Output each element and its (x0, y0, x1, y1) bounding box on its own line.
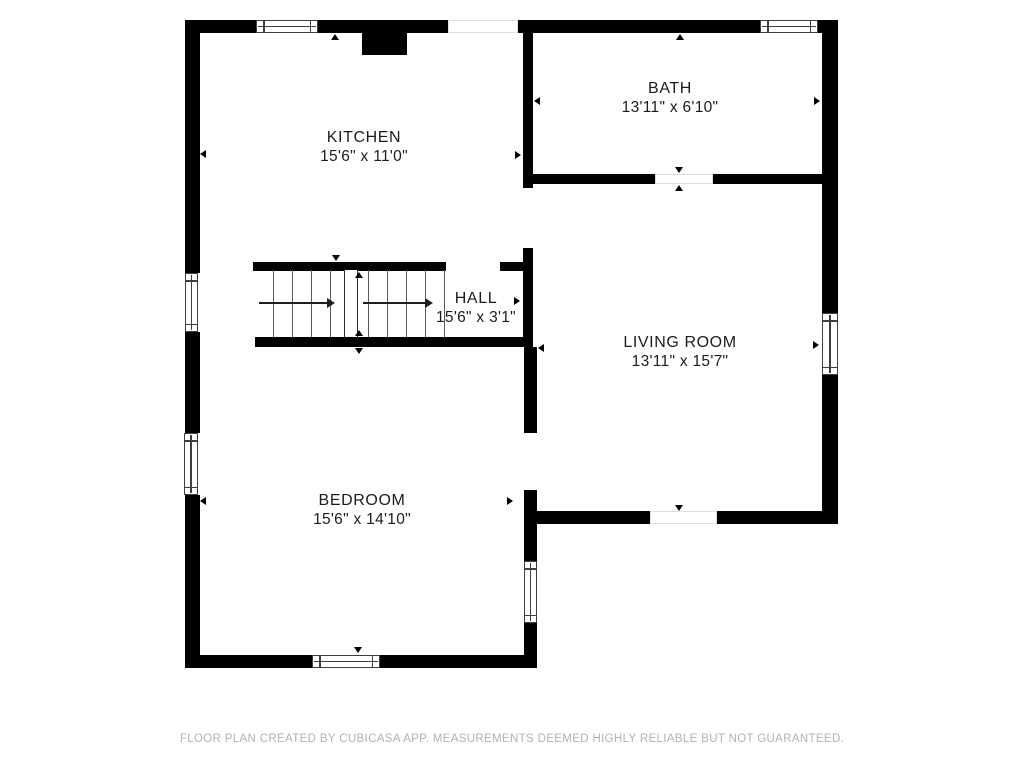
door-opening-living-room-bottom (650, 511, 717, 524)
staircase-direction-arrow (259, 302, 327, 304)
wall-left (185, 20, 200, 273)
room-dimensions: 13'11" x 15'7" (623, 352, 736, 371)
opening-marker-icon (355, 348, 363, 354)
opening-marker-icon (814, 97, 820, 105)
wall-left (185, 495, 200, 668)
room-name: BATH (622, 79, 719, 98)
staircase (255, 270, 446, 337)
room-name: KITCHEN (320, 128, 408, 147)
chimney-block (362, 30, 407, 55)
room-label-bath: BATH 13'11" x 6'10" (622, 79, 719, 117)
opening-marker-icon (355, 330, 363, 336)
door-opening-front (448, 20, 518, 33)
room-dimensions: 15'6" x 3'1" (436, 308, 516, 327)
wall-bedroom-bottom (380, 655, 537, 668)
staircase-flight-divider (344, 270, 358, 337)
wall-kitchen-bath-divider (523, 20, 533, 188)
wall-hall-top-stub (500, 262, 523, 271)
window-living-room-right (822, 313, 838, 375)
opening-marker-icon (538, 344, 544, 352)
room-name: BEDROOM (313, 491, 411, 510)
opening-marker-icon (355, 272, 363, 278)
wall-bedroom-right (524, 623, 537, 668)
window-bedroom-bottom (312, 655, 380, 668)
room-dimensions: 13'11" x 6'10" (622, 98, 719, 117)
wall-right (822, 375, 838, 524)
room-label-living-room: LIVING ROOM 13'11" x 15'7" (623, 333, 736, 371)
wall-bedroom-bottom (185, 655, 312, 668)
wall-living-room-bottom (717, 511, 838, 524)
room-name: LIVING ROOM (623, 333, 736, 352)
room-label-bedroom: BEDROOM 15'6" x 14'10" (313, 491, 411, 529)
opening-marker-icon (675, 505, 683, 511)
wall-bedroom-living-divider (524, 347, 537, 433)
window-bath-top (760, 20, 818, 33)
staircase-direction-arrow (363, 302, 425, 304)
opening-marker-icon (332, 255, 340, 261)
room-name: HALL (436, 289, 516, 308)
opening-marker-icon (675, 185, 683, 191)
wall-left (185, 332, 200, 433)
wall-bath-bottom (713, 174, 822, 184)
opening-marker-icon (507, 497, 513, 505)
floor-plan: KITCHEN 15'6" x 11'0" BATH 13'11" x 6'10… (0, 0, 1024, 768)
opening-marker-icon (331, 34, 339, 40)
room-dimensions: 15'6" x 11'0" (320, 147, 408, 166)
wall-living-room-bottom (533, 511, 650, 524)
opening-marker-icon (675, 167, 683, 173)
opening-marker-icon (354, 647, 362, 653)
opening-marker-icon (200, 150, 206, 158)
wall-bedroom-right (524, 490, 537, 561)
wall-hall-living-divider (523, 248, 533, 347)
opening-marker-icon (534, 97, 540, 105)
wall-right (822, 20, 838, 313)
opening-marker-icon (813, 341, 819, 349)
window-hall-left (185, 273, 198, 332)
opening-marker-icon (676, 34, 684, 40)
door-opening-bath (655, 174, 713, 184)
wall-hall-bottom (255, 337, 523, 347)
wall-bath-bottom (533, 174, 655, 184)
room-label-hall: HALL 15'6" x 3'1" (436, 289, 516, 327)
opening-marker-icon (200, 497, 206, 505)
wall-top (518, 20, 760, 33)
window-bedroom-right (524, 561, 537, 623)
room-dimensions: 15'6" x 14'10" (313, 510, 411, 529)
window-kitchen-top (256, 20, 318, 33)
disclaimer-text: FLOOR PLAN CREATED BY CUBICASA APP. MEAS… (0, 733, 1024, 745)
opening-marker-icon (515, 151, 521, 159)
window-bedroom-left (184, 433, 198, 495)
room-label-kitchen: KITCHEN 15'6" x 11'0" (320, 128, 408, 166)
